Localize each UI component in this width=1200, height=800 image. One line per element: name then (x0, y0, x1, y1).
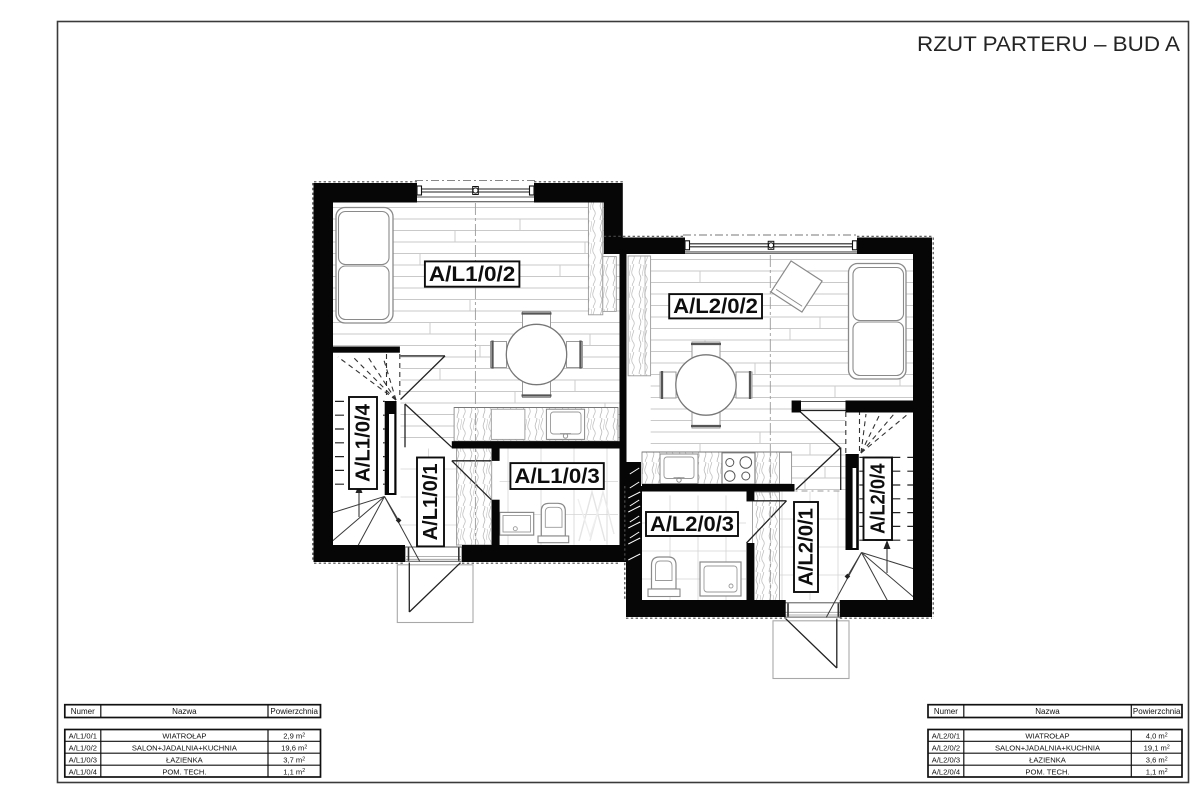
svg-text:A/L1/0/1: A/L1/0/1 (69, 732, 97, 741)
svg-text:ŁAZIENKA: ŁAZIENKA (1029, 756, 1067, 765)
svg-text:A/L1/0/3: A/L1/0/3 (69, 756, 97, 765)
svg-text:A/L2/0/3: A/L2/0/3 (650, 513, 734, 536)
svg-text:Numer: Numer (71, 707, 95, 716)
svg-text:3,6 m2: 3,6 m2 (1146, 756, 1168, 765)
svg-text:4,0 m2: 4,0 m2 (1146, 732, 1168, 741)
svg-text:A/L2/0/4: A/L2/0/4 (932, 768, 960, 777)
svg-text:A/L2/0/4: A/L2/0/4 (866, 463, 889, 534)
svg-text:Nazwa: Nazwa (1035, 707, 1060, 716)
svg-text:POM. TECH.: POM. TECH. (1025, 768, 1069, 777)
svg-text:WIATROŁAP: WIATROŁAP (162, 732, 206, 741)
svg-text:POM. TECH.: POM. TECH. (162, 768, 206, 777)
svg-text:A/L1/0/3: A/L1/0/3 (514, 465, 599, 488)
svg-text:A/L2/0/3: A/L2/0/3 (932, 756, 960, 765)
svg-text:19,6 m2: 19,6 m2 (281, 744, 307, 753)
svg-text:RZUT PARTERU – BUD A: RZUT PARTERU – BUD A (917, 32, 1181, 56)
svg-text:WIATROŁAP: WIATROŁAP (1025, 732, 1069, 741)
svg-text:ŁAZIENKA: ŁAZIENKA (166, 756, 204, 765)
svg-text:1,1 m2: 1,1 m2 (283, 768, 305, 777)
svg-text:SALON+JADALNIA+KUCHNIA: SALON+JADALNIA+KUCHNIA (132, 744, 238, 753)
svg-text:2,9 m2: 2,9 m2 (283, 732, 305, 741)
svg-text:Powierzchnia: Powierzchnia (270, 707, 318, 716)
svg-text:A/L1/0/4: A/L1/0/4 (352, 403, 375, 482)
svg-text:Numer: Numer (934, 707, 958, 716)
svg-text:A/L2/0/2: A/L2/0/2 (673, 295, 758, 318)
svg-text:19,1 m2: 19,1 m2 (1144, 744, 1170, 753)
svg-text:A/L2/0/1: A/L2/0/1 (932, 732, 960, 741)
svg-text:A/L2/0/1: A/L2/0/1 (795, 508, 818, 586)
svg-text:1,1 m2: 1,1 m2 (1146, 768, 1168, 777)
svg-text:SALON+JADALNIA+KUCHNIA: SALON+JADALNIA+KUCHNIA (995, 744, 1101, 753)
svg-text:A/L1/0/2: A/L1/0/2 (69, 744, 97, 753)
svg-text:A/L1/0/1: A/L1/0/1 (419, 463, 442, 540)
svg-text:A/L1/0/4: A/L1/0/4 (69, 768, 97, 777)
svg-text:A/L1/0/2: A/L1/0/2 (429, 263, 516, 286)
svg-text:Nazwa: Nazwa (172, 707, 197, 716)
svg-text:3,7 m2: 3,7 m2 (283, 756, 305, 765)
svg-text:Powierzchnia: Powierzchnia (1133, 707, 1181, 716)
svg-text:A/L2/0/2: A/L2/0/2 (932, 744, 960, 753)
